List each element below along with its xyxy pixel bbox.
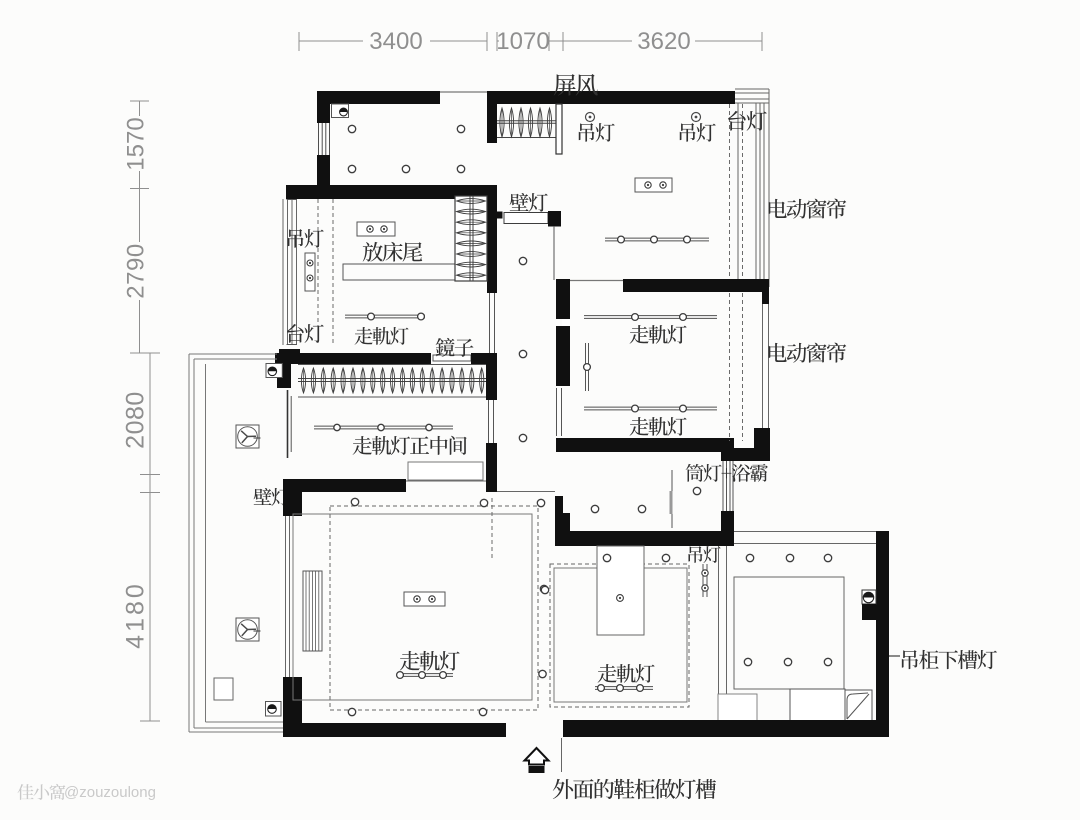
- svg-text:@zouzoulong: @zouzoulong: [64, 784, 156, 801]
- svg-text:4180: 4180: [122, 581, 150, 649]
- svg-text:3620: 3620: [637, 28, 690, 55]
- svg-text:2790: 2790: [123, 243, 150, 298]
- svg-text:2080: 2080: [122, 391, 150, 449]
- svg-text:1570: 1570: [123, 117, 150, 170]
- svg-text:1070: 1070: [496, 28, 549, 55]
- svg-text:3400: 3400: [369, 28, 422, 55]
